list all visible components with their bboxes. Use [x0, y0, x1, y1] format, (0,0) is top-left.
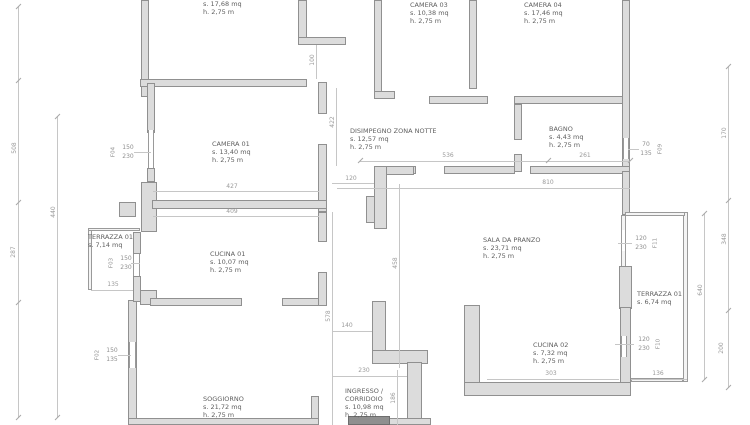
wall	[622, 171, 630, 215]
dimension-line	[332, 331, 372, 332]
dim-200: 200	[719, 342, 725, 353]
wall	[407, 362, 422, 420]
floor-plan: s. 17,68 mq h. 2,75 m CAMERA 03 s. 10,38…	[0, 0, 750, 425]
wall	[133, 232, 141, 254]
dimension-line	[153, 191, 319, 192]
wall	[514, 104, 522, 140]
dimension-line	[18, 6, 19, 418]
dim-458: 458	[393, 257, 399, 268]
wall	[147, 83, 155, 133]
window-f10-height: 230	[638, 346, 649, 352]
wall	[469, 0, 477, 89]
window-f09-height: 135	[640, 151, 651, 157]
window-f11-width: 120	[635, 236, 646, 242]
leader-line	[134, 152, 151, 153]
pillar	[119, 202, 136, 217]
leader-line	[131, 263, 140, 264]
dimension-line	[360, 161, 630, 162]
room-label-soggiorno: SOGGIORNO s. 21,72 mq h. 2,75 m	[203, 396, 244, 420]
room-label-camera-03: CAMERA 03 s. 10,38 mq h. 2,75 m	[410, 2, 449, 26]
dimension-line	[631, 379, 687, 380]
wall	[147, 168, 155, 182]
dim-230: 230	[358, 368, 369, 374]
dimension-line	[728, 66, 729, 388]
wall	[140, 79, 307, 87]
dim-409: 409	[226, 209, 237, 215]
dim-578: 578	[326, 310, 332, 321]
leader-line	[618, 243, 632, 244]
dimension-line	[332, 376, 407, 377]
wall	[318, 82, 327, 114]
dim-810: 810	[542, 180, 553, 186]
dim-140: 140	[341, 323, 352, 329]
window-f04	[148, 130, 154, 168]
dimension-line	[57, 116, 58, 418]
dim-303: 303	[545, 371, 556, 377]
wall	[152, 200, 327, 209]
window-f09-code: F09	[658, 144, 664, 154]
wall	[464, 382, 631, 396]
dimension-line	[316, 45, 317, 79]
dimension-line	[332, 183, 374, 184]
window-f03	[133, 254, 140, 276]
room-label-cucina-02: CUCINA 02 s. 7,32 mq h. 2,75 m	[533, 342, 568, 366]
leader-line	[615, 344, 634, 345]
wall	[374, 91, 395, 99]
wall	[389, 418, 431, 425]
room-label-ingresso-corridoio: INGRESSO / CORRIDOIO s. 10,98 mq h. 2,75…	[345, 388, 384, 420]
dimension-line	[91, 290, 133, 291]
dim-508: 508	[12, 142, 18, 153]
wall	[444, 166, 515, 174]
window-f11	[621, 230, 626, 251]
dimension-line	[704, 213, 705, 380]
window-f04-code: F04	[111, 147, 117, 157]
dim-422: 422	[330, 116, 336, 127]
wall	[429, 96, 488, 104]
dim-640: 640	[698, 284, 704, 295]
leader-line	[628, 149, 639, 150]
window-f03-width: 150	[120, 256, 131, 262]
window-f02-height: 135	[106, 357, 117, 363]
terrace-wall	[683, 212, 688, 382]
window-f04-height: 230	[122, 154, 133, 160]
dim-100: 100	[310, 54, 316, 65]
dimension-line	[337, 188, 630, 189]
room-label-cucina-01: CUCINA 01 s. 10,07 mq h. 2,75 m	[210, 251, 249, 275]
dimension-line	[153, 216, 319, 217]
dimension-tick	[702, 377, 708, 383]
window-f10-code: F10	[656, 339, 662, 349]
window-f03-height: 230	[120, 265, 131, 271]
wall	[298, 37, 346, 45]
dim-261: 261	[579, 153, 590, 159]
dimension-line	[487, 379, 619, 380]
dimension-line	[399, 184, 400, 368]
room-label-disimpegno: DISIMPEGNO ZONA NOTTE s. 12,57 mq h. 2,7…	[350, 128, 437, 152]
room-label-camera-02: s. 17,68 mq h. 2,75 m	[203, 1, 242, 17]
window-f10-width: 120	[638, 337, 649, 343]
window-f09-width: 70	[642, 142, 650, 148]
wall	[150, 298, 242, 306]
dimension-line	[332, 212, 333, 425]
wall	[619, 266, 632, 309]
wall-pilaster	[366, 196, 375, 223]
window-f03-code: F03	[109, 258, 115, 268]
dimension-tick	[726, 385, 732, 391]
wall	[318, 212, 327, 242]
room-label-bagno: BAGNO s. 4,43 mq h. 2,75 m	[549, 126, 584, 150]
window-f04-width: 150	[122, 145, 133, 151]
dimension-tick	[55, 415, 61, 421]
window-f10	[621, 336, 627, 357]
dim-136: 136	[652, 371, 663, 377]
terrace-wall	[625, 212, 685, 216]
wall	[464, 305, 480, 384]
wall	[374, 166, 387, 229]
window-f02-width: 150	[106, 348, 117, 354]
dim-348: 348	[722, 233, 728, 244]
dim-186: 186	[391, 392, 397, 403]
dimension-tick	[16, 415, 22, 421]
room-label-terrazza-01-dx: TERRAZZA 01 s. 6,74 mq	[637, 291, 682, 307]
dim-536: 536	[442, 153, 453, 159]
dimension-line	[336, 88, 337, 166]
window-f11-height: 230	[635, 245, 646, 251]
wall	[372, 301, 386, 352]
wall	[374, 0, 382, 98]
dim-135: 135	[107, 282, 118, 288]
wall	[514, 154, 522, 172]
dim-120: 120	[345, 176, 356, 182]
dim-427: 427	[226, 184, 237, 190]
room-label-camera-01: CAMERA 01 s. 13,40 mq h. 2,75 m	[212, 141, 251, 165]
window-f11-code: F11	[653, 238, 659, 248]
wall	[133, 276, 141, 302]
dimension-line	[397, 370, 398, 425]
room-label-camera-04: CAMERA 04 s. 17,46 mq h. 2,75 m	[524, 2, 563, 26]
leader-line	[118, 355, 131, 356]
wall	[530, 166, 630, 174]
dim-287: 287	[11, 246, 17, 257]
room-label-sala-da-pranzo: SALA DA PRANZO s. 23,71 mq h. 2,75 m	[483, 237, 540, 261]
window-f02-code: F02	[95, 350, 101, 360]
terrace-wall	[88, 228, 140, 231]
wall	[514, 96, 630, 104]
dim-440: 440	[51, 206, 57, 217]
wall	[318, 272, 327, 306]
dim-170: 170	[722, 127, 728, 138]
room-label-terrazza-01-sx: TERRAZZA 01 s. 7,14 mq	[88, 234, 133, 250]
